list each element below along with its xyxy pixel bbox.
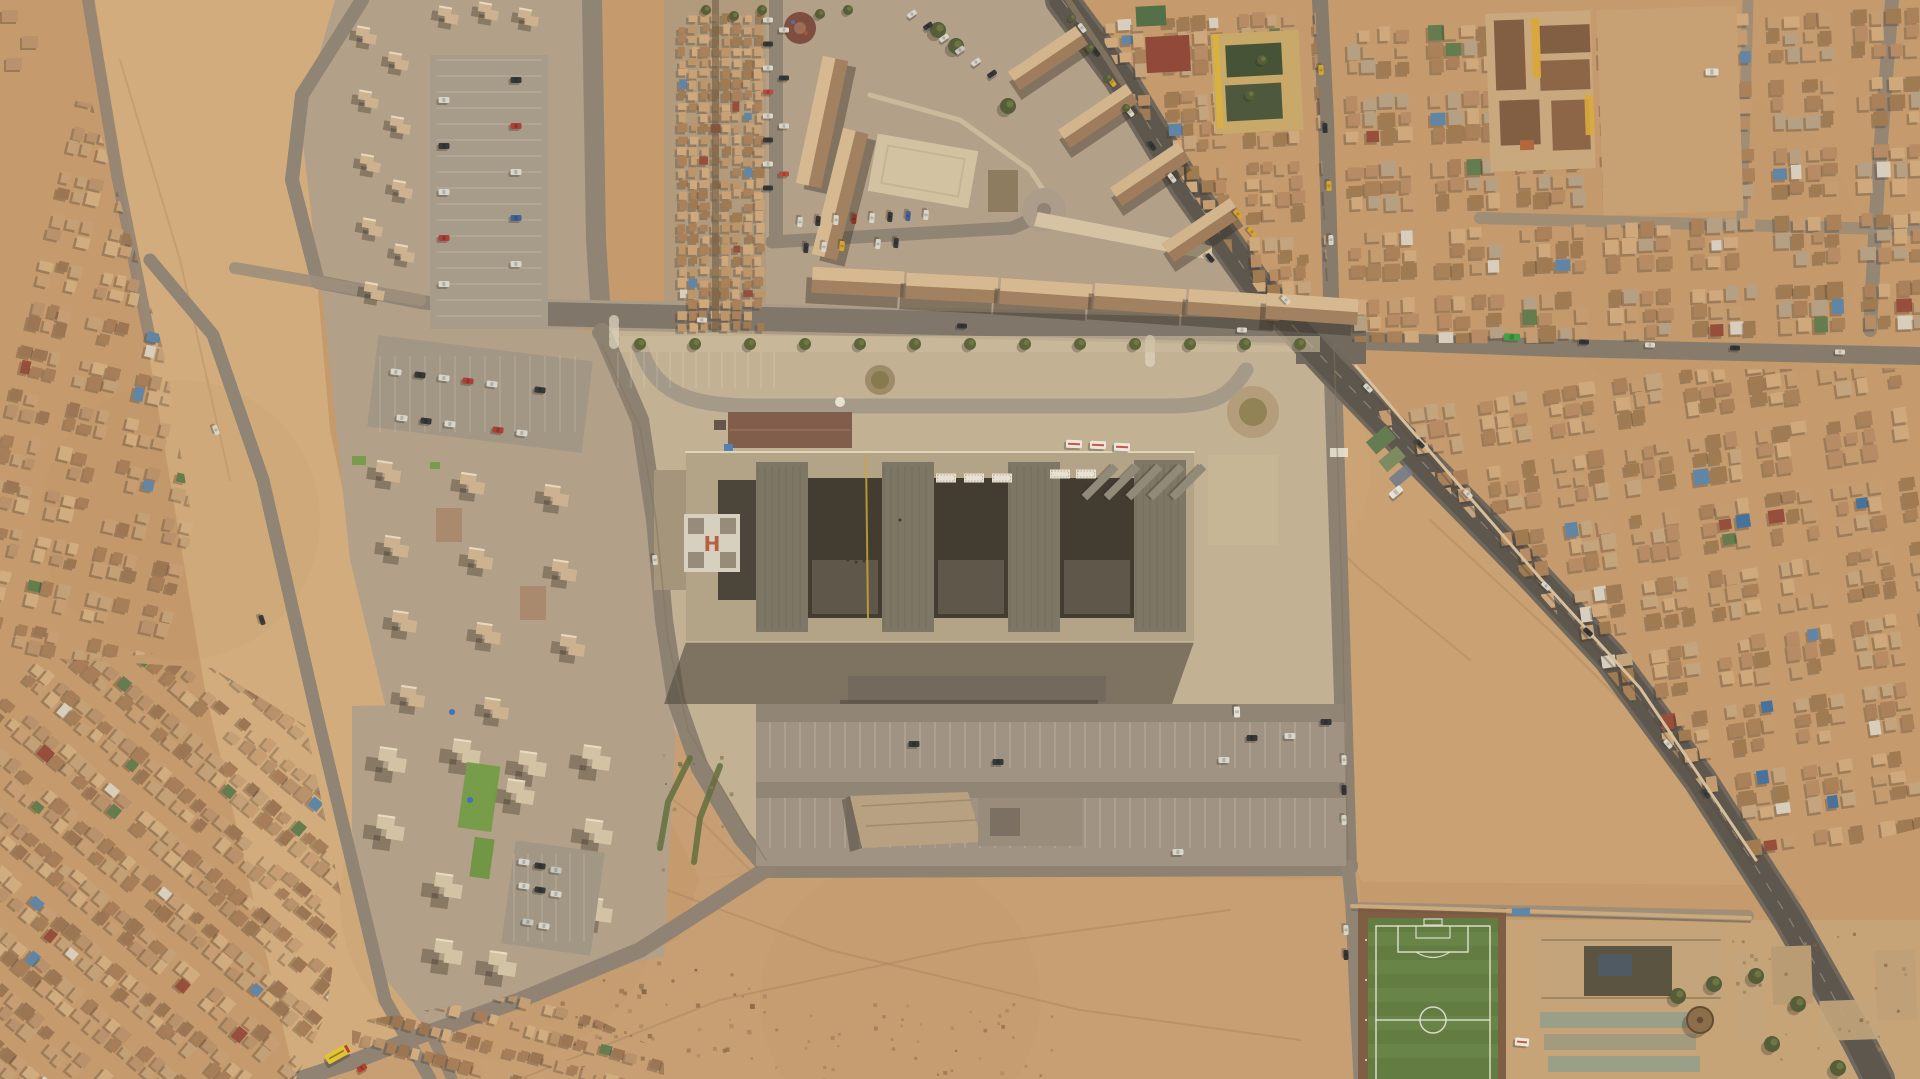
aerial-photograph: H <box>0 0 1920 1079</box>
warm-wash <box>0 0 1920 1079</box>
aerial-photo-svg: H <box>0 0 1920 1079</box>
atmosphere <box>0 0 1920 1079</box>
